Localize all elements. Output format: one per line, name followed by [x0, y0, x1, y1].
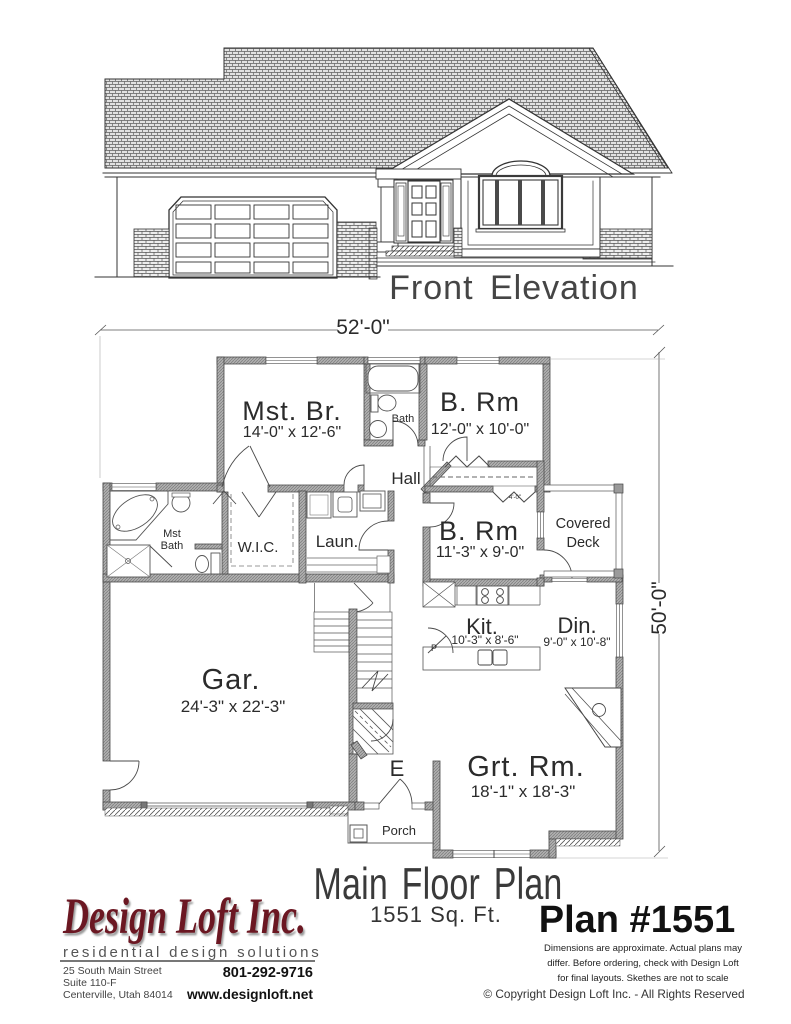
svg-text:B. Rm: B. Rm: [440, 387, 520, 417]
svg-text:14'-0" x 12'-6": 14'-0" x 12'-6": [243, 424, 341, 441]
svg-text:9'-0" x 10'-8": 9'-0" x 10'-8": [543, 635, 610, 649]
svg-text:for final layouts. Skethes ar: for final layouts. Skethes are not to sc…: [557, 973, 728, 984]
svg-text:10'-3" x 8'-6": 10'-3" x 8'-6": [451, 633, 518, 647]
svg-text:11'-3" x 9'-0": 11'-3" x 9'-0": [436, 544, 524, 561]
svg-text:Covered: Covered: [556, 516, 611, 532]
svg-text:52'-0": 52'-0": [336, 316, 390, 339]
svg-text:Porch: Porch: [382, 823, 416, 838]
svg-text:differ. Before ordering, chec: differ. Before ordering, check with Desi…: [547, 958, 739, 969]
svg-text:1551 Sq. Ft.: 1551 Sq. Ft.: [370, 902, 502, 927]
svg-text:Laun.: Laun.: [316, 532, 359, 551]
svg-text:Deck: Deck: [566, 535, 600, 551]
svg-text:Centerville, Utah 84014: Centerville, Utah 84014: [63, 989, 173, 1001]
svg-text:Bath: Bath: [161, 540, 184, 552]
svg-text:Mst: Mst: [163, 528, 181, 540]
svg-text:Front Elevation: Front Elevation: [389, 269, 639, 307]
svg-text:www.designloft.net: www.designloft.net: [186, 987, 313, 1002]
svg-text:50'-0": 50'-0": [648, 581, 671, 635]
svg-text:Plan #1551: Plan #1551: [539, 899, 735, 941]
svg-text:Mst. Br.: Mst. Br.: [242, 396, 342, 426]
svg-text:Grt. Rm.: Grt. Rm.: [467, 751, 585, 783]
svg-text:Dimensions are approximate. A: Dimensions are approximate. Actual plans…: [544, 943, 742, 954]
svg-text:25 South Main Street: 25 South Main Street: [63, 965, 162, 977]
svg-text:© Copyright Design Loft Inc.: © Copyright Design Loft Inc. - All Right…: [483, 987, 744, 1001]
svg-text:Bath: Bath: [392, 413, 415, 425]
svg-text:E: E: [390, 756, 405, 781]
svg-text:W.I.C.: W.I.C.: [238, 539, 279, 556]
svg-text:Suite 110-F: Suite 110-F: [63, 977, 117, 989]
svg-text:18'-1" x 18'-3": 18'-1" x 18'-3": [471, 782, 576, 801]
svg-text:24'-3" x 22'-3": 24'-3" x 22'-3": [181, 697, 286, 716]
svg-text:12'-0" x 10'-0": 12'-0" x 10'-0": [431, 421, 529, 438]
svg-text:residential design solutions: residential design solutions: [63, 944, 322, 961]
svg-text:P: P: [431, 643, 437, 653]
svg-text:Hall: Hall: [391, 469, 420, 488]
svg-text:B. Rm: B. Rm: [439, 516, 519, 546]
svg-text:801-292-9716: 801-292-9716: [223, 965, 313, 981]
svg-text:Design Loft Inc.: Design Loft Inc.: [62, 888, 306, 945]
svg-text:Gar.: Gar.: [202, 664, 261, 696]
svg-text:4'-0": 4'-0": [509, 495, 521, 501]
